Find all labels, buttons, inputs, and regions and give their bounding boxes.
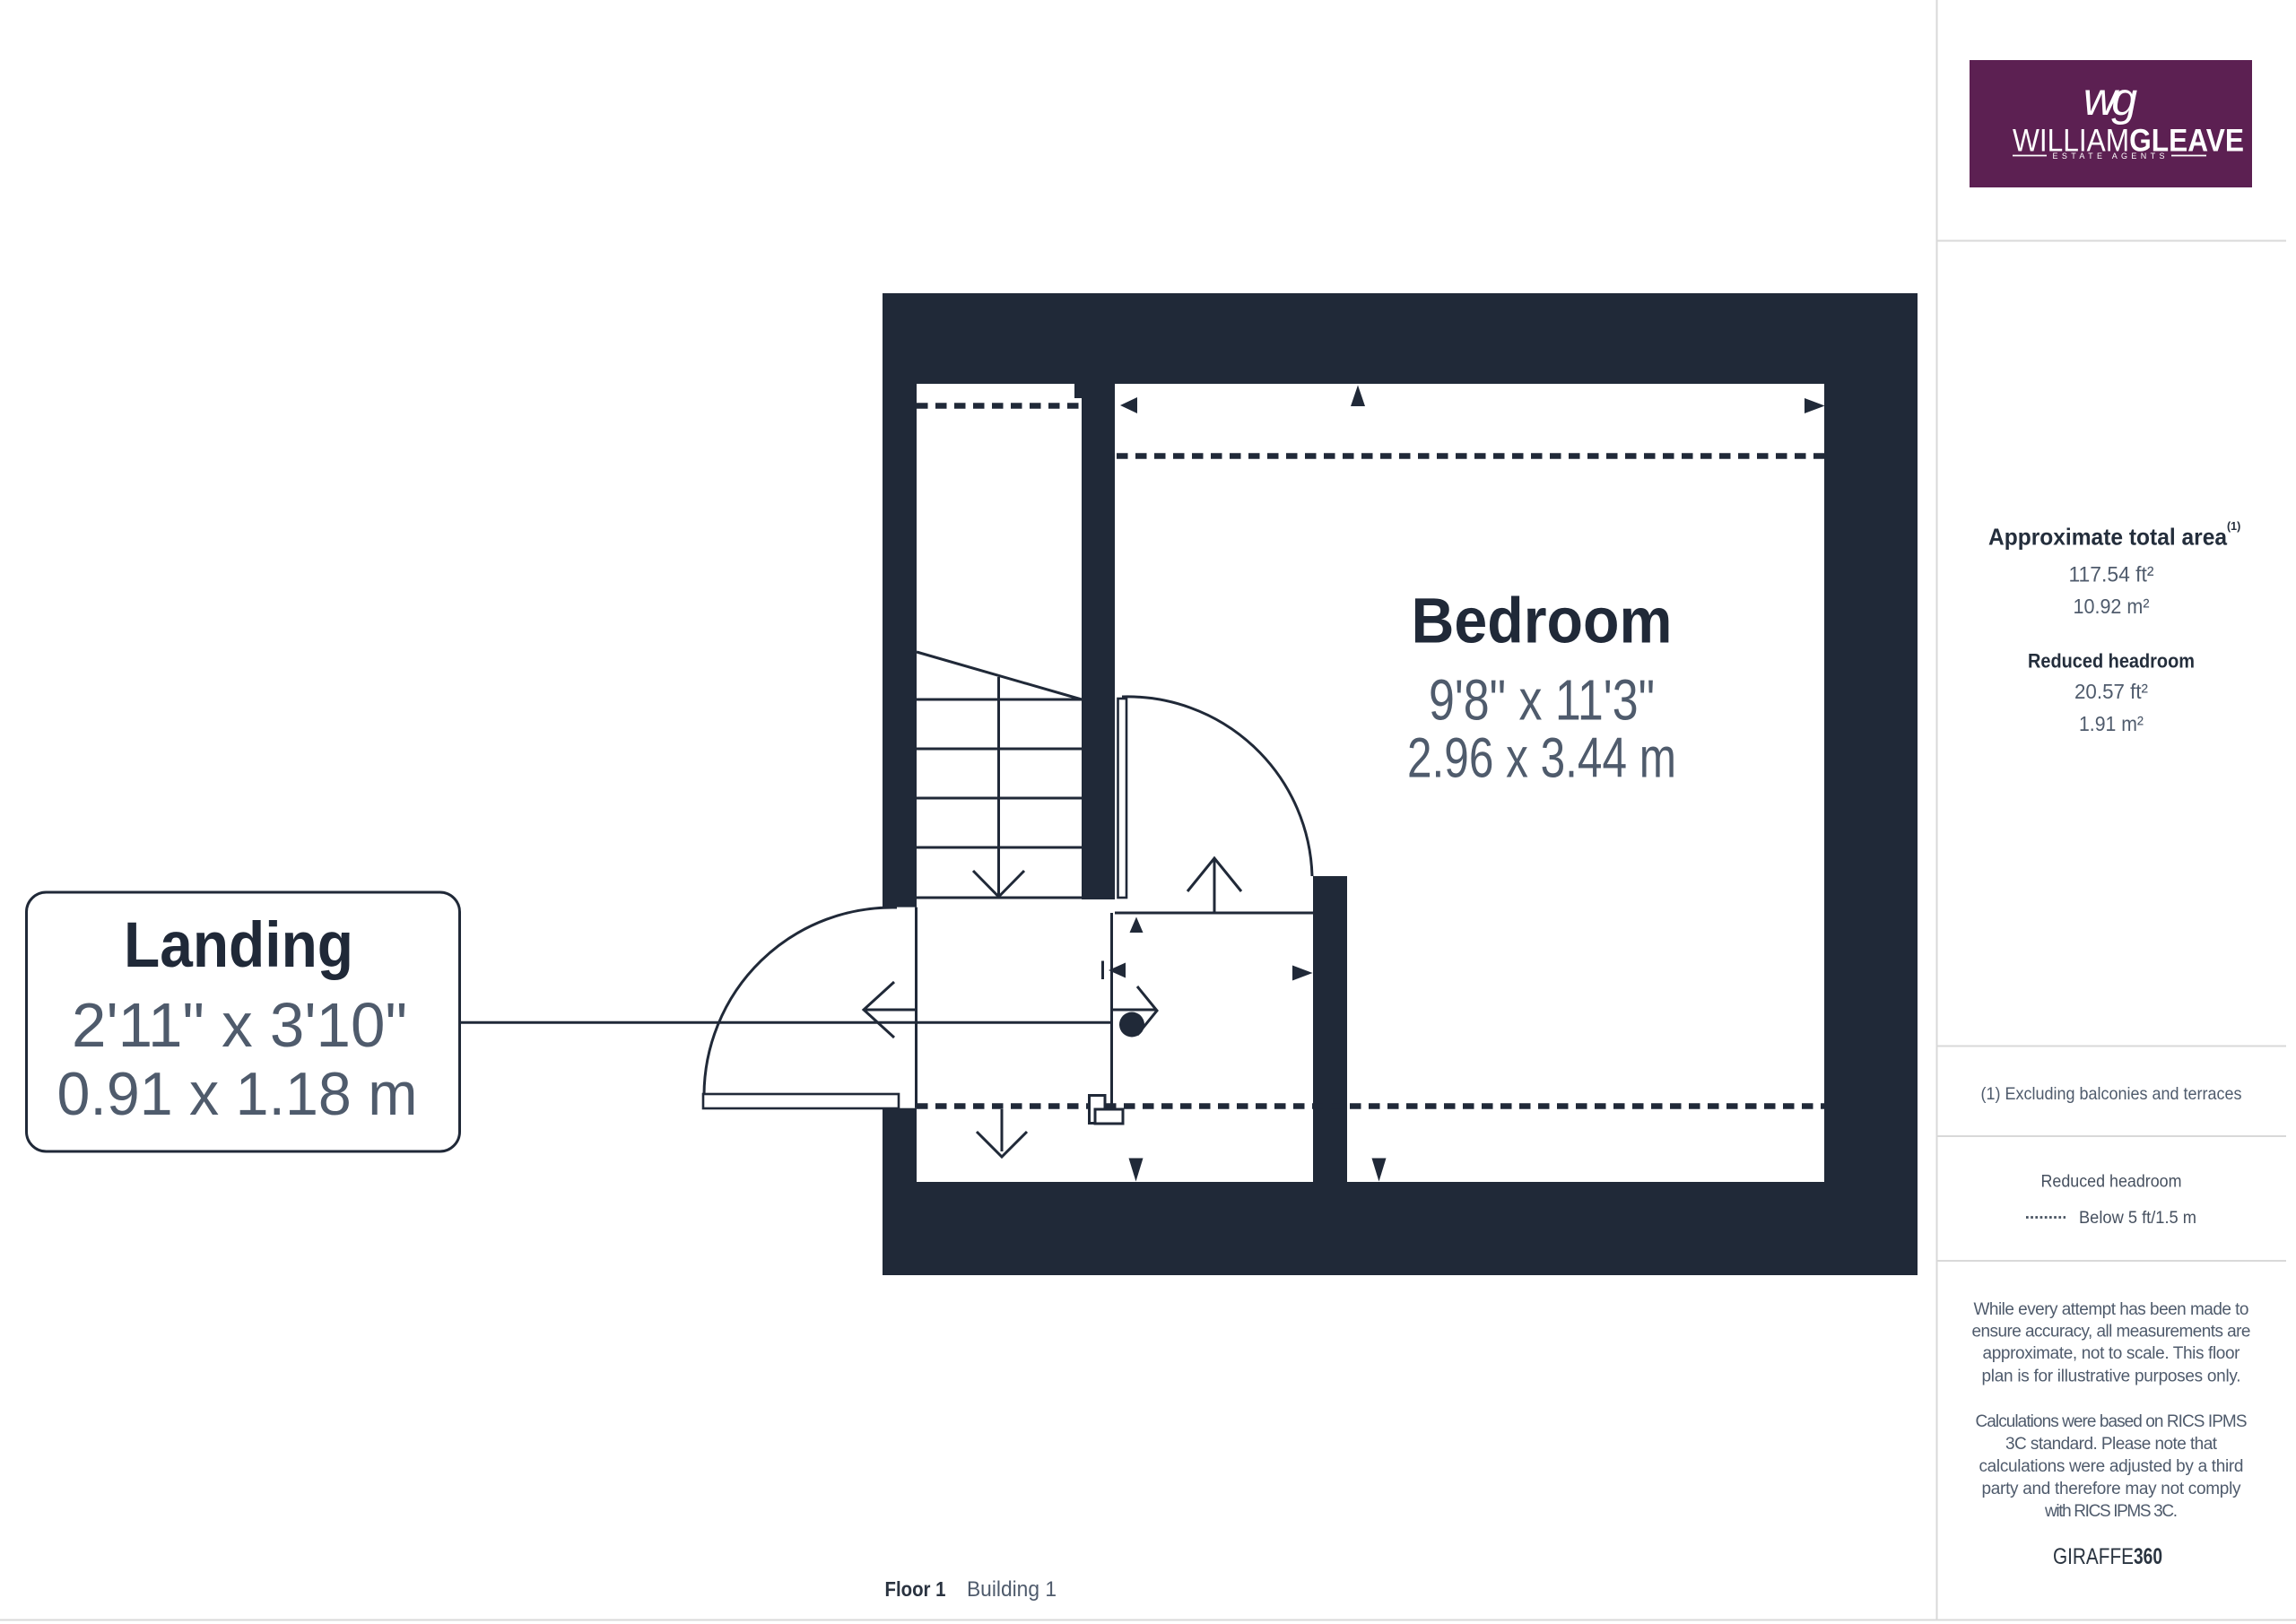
svg-text:plan is for illustrative purpo: plan is for illustrative purposes only. [1982, 1368, 2241, 1386]
svg-text:(1): (1) [2227, 520, 2240, 533]
svg-text:Reduced headroom: Reduced headroom [2028, 650, 2195, 673]
svg-text:with RICS IPMS 3C.: with RICS IPMS 3C. [2044, 1502, 2178, 1521]
svg-text:1.91 m²: 1.91 m² [2079, 712, 2144, 735]
svg-text:ensure accuracy, all measureme: ensure accuracy, all measurements are [1972, 1323, 2251, 1342]
svg-text:Landing: Landing [124, 910, 353, 981]
svg-text:party and therefore may not co: party and therefore may not comply [1982, 1480, 2242, 1498]
svg-text:Approximate total area: Approximate total area [1988, 524, 2228, 551]
svg-text:While every attempt has been m: While every attempt has been made to [1974, 1300, 2249, 1319]
svg-text:calculations were adjusted by: calculations were adjusted by a third [1979, 1457, 2244, 1476]
svg-text:360: 360 [2134, 1544, 2162, 1569]
svg-text:20.57 ft²: 20.57 ft² [2074, 680, 2148, 703]
svg-text:(1) Excluding balconies and te: (1) Excluding balconies and terraces [1981, 1084, 2242, 1104]
svg-text:2.96 x 3.44 m: 2.96 x 3.44 m [1407, 727, 1676, 790]
svg-text:approximate, not to scale. Thi: approximate, not to scale. This floor [1983, 1344, 2241, 1363]
svg-text:3C standard. Please note that: 3C standard. Please note that [2005, 1435, 2218, 1454]
svg-text:10.92 m²: 10.92 m² [2074, 595, 2150, 618]
svg-text:wg: wg [2083, 74, 2138, 126]
svg-text:Reduced headroom: Reduced headroom [2041, 1172, 2182, 1192]
svg-text:9'8" x 11'3": 9'8" x 11'3" [1429, 668, 1655, 733]
svg-text:GIRAFFE: GIRAFFE [2053, 1544, 2134, 1569]
svg-text:Bedroom: Bedroom [1412, 586, 1673, 657]
svg-text:WILLIAMGLEAVE: WILLIAMGLEAVE [2013, 124, 2244, 159]
svg-text:0.91 x 1.18 m: 0.91 x 1.18 m [57, 1060, 418, 1128]
svg-text:2'11" x 3'10": 2'11" x 3'10" [72, 990, 407, 1060]
svg-text:Floor 1: Floor 1 [885, 1577, 946, 1601]
svg-text:Building 1: Building 1 [967, 1577, 1057, 1602]
svg-text:Below 5 ft/1.5 m: Below 5 ft/1.5 m [2079, 1208, 2196, 1228]
svg-text:Calculations were based on RIC: Calculations were based on RICS IPMS [1976, 1412, 2248, 1431]
svg-text:117.54 ft²: 117.54 ft² [2069, 563, 2154, 587]
